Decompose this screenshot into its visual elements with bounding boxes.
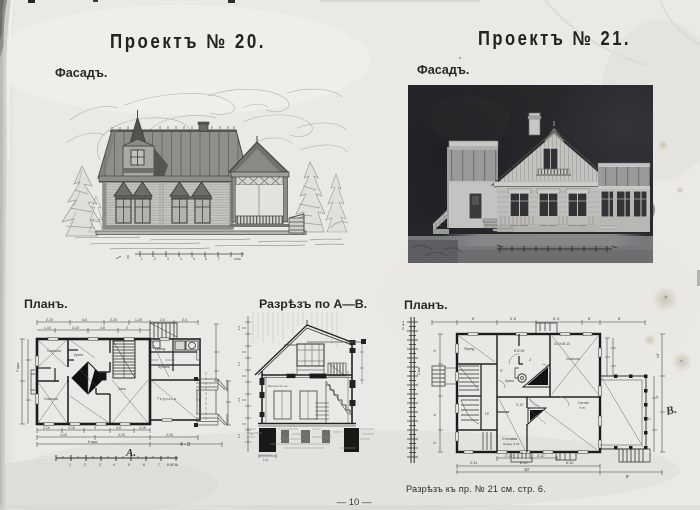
svg-text:7 арш: 7 арш [16, 362, 20, 372]
svg-text:4-15: 4-15 [166, 433, 173, 437]
svg-text:10': 10' [485, 412, 490, 416]
svg-text:1-6: 1-6 [237, 434, 241, 438]
svg-text:Чуланъ: Чуланъ [158, 365, 170, 369]
svg-text:2-15: 2-15 [110, 318, 117, 322]
svg-text:3': 3' [433, 349, 437, 352]
svg-text:5: 5 [193, 257, 195, 261]
svg-text:3': 3' [433, 441, 437, 444]
svg-text:8': 8' [626, 474, 629, 479]
svg-text:1-15: 1-15 [135, 318, 142, 322]
svg-text:Планъ.: Планъ. [24, 297, 68, 311]
svg-text:2: 2 [84, 463, 86, 467]
svg-text:2-15: 2-15 [139, 426, 146, 430]
svg-text:2': 2' [529, 358, 532, 362]
svg-text:4 - 8: 4 - 8 [180, 442, 190, 448]
svg-text:6': 6' [588, 317, 591, 321]
svg-text:2: 2 [154, 257, 156, 261]
svg-text:6': 6' [618, 317, 621, 321]
svg-text:3: 3 [94, 426, 96, 430]
svg-text:7': 7' [648, 417, 652, 420]
svg-text:2: 2 [126, 326, 128, 330]
svg-text:2-4: 2-4 [182, 318, 187, 322]
svg-text:Перед.: Перед. [464, 347, 475, 351]
svg-text:10': 10' [524, 467, 530, 472]
svg-text:3'-11": 3'-11" [516, 403, 524, 407]
svg-text:Фасадъ.: Фасадъ. [417, 63, 469, 77]
svg-text:2-1: 2-1 [237, 362, 241, 366]
svg-text:8 АРШ: 8 АРШ [167, 463, 178, 467]
svg-text:7: 7 [158, 463, 160, 467]
svg-text:2'-10: 2'-10 [505, 454, 513, 458]
svg-text:Кухня: Кухня [74, 353, 83, 357]
svg-text:Разрѣзъ къ пр. № 21 см. стр. 6: Разрѣзъ къ пр. № 21 см. стр. 6. [406, 484, 546, 495]
svg-text:4-15: 4-15 [60, 433, 67, 437]
svg-text:Перед. 5'×8': Перед. 5'×8' [503, 442, 520, 446]
svg-text:4-6: 4-6 [116, 426, 121, 430]
svg-text:4": 4" [500, 369, 503, 373]
svg-text:Саж: Саж [416, 367, 421, 375]
svg-text:Терраса: Терраса [157, 397, 177, 401]
svg-text:6: 6 [205, 257, 207, 261]
svg-text:2-10: 2-10 [46, 318, 53, 322]
svg-text:1: 1 [141, 257, 143, 261]
svg-text:6'-3: 6'-3 [553, 317, 559, 321]
svg-text:3'-11: 3'-11 [470, 461, 477, 465]
svg-text:4: 4 [113, 463, 115, 467]
svg-text:Кухня: Кухня [505, 379, 514, 383]
svg-text:14'-0×8'-10: 14'-0×8'-10 [554, 342, 570, 346]
svg-text:3-4: 3-4 [237, 398, 241, 402]
svg-text:4-6: 4-6 [82, 318, 87, 322]
svg-text:6': 6' [472, 317, 475, 321]
svg-text:Планъ.: Планъ. [404, 298, 448, 312]
svg-text:3: 3 [167, 257, 169, 261]
svg-text:Фасадъ.: Фасадъ. [55, 66, 107, 80]
svg-text:6: 6 [433, 414, 437, 416]
svg-text:2-16: 2-16 [68, 426, 75, 430]
svg-text:3'-6: 3'-6 [510, 317, 516, 321]
svg-text:2-10: 2-10 [43, 426, 50, 430]
svg-text:6: 6 [143, 463, 145, 467]
svg-text:6 арш: 6 арш [88, 440, 98, 444]
svg-text:3'-10: 3'-10 [537, 454, 545, 458]
svg-text:Спальня: Спальня [44, 397, 58, 401]
svg-text:8'-6"×8': 8'-6"×8' [514, 349, 525, 353]
svg-text:10 арш: 10 арш [401, 320, 405, 330]
svg-text:5: 5 [128, 463, 130, 467]
svg-text:Столовая: Столовая [502, 437, 517, 441]
svg-text:Разрѣзъ по А—В.: Разрѣзъ по А—В. [259, 297, 367, 311]
svg-text:1-2: 1-2 [237, 326, 241, 330]
svg-text:Проектъ № 21.: Проектъ № 21. [478, 28, 631, 50]
svg-text:1-10: 1-10 [44, 326, 51, 330]
svg-text:1: 1 [69, 463, 71, 467]
svg-text:4-15: 4-15 [118, 433, 125, 437]
svg-text:2-4: 2-4 [160, 318, 165, 322]
svg-text:1-4: 1-4 [263, 458, 268, 462]
svg-text:8'-10: 8'-10 [566, 461, 574, 465]
svg-text:Высота 4¾ ар.: Высота 4¾ ар. [268, 384, 288, 388]
svg-text:7: 7 [218, 257, 220, 261]
svg-text:7'×5': 7'×5' [579, 406, 586, 410]
svg-text:14': 14' [656, 353, 660, 358]
svg-text:АРШ: АРШ [234, 257, 241, 261]
svg-text:4: 4 [180, 257, 182, 261]
svg-text:3-10: 3-10 [72, 326, 79, 330]
svg-text:Гостин.: Гостин. [578, 401, 590, 405]
svg-text:Перед.: Перед. [155, 347, 166, 351]
svg-text:Спальня: Спальня [566, 357, 580, 361]
svg-text:3: 3 [99, 463, 101, 467]
svg-text:Проектъ № 20.: Проектъ № 20. [110, 31, 266, 53]
svg-text:А.: А. [125, 447, 136, 459]
svg-text:Залъ: Залъ [118, 387, 126, 391]
svg-text:Спальня: Спальня [47, 349, 61, 353]
svg-text:— 10 —: — 10 — [337, 497, 372, 508]
svg-text:2-8: 2-8 [100, 326, 105, 330]
svg-text:7': 7' [656, 395, 660, 398]
svg-text:8'-10: 8'-10 [520, 461, 528, 465]
